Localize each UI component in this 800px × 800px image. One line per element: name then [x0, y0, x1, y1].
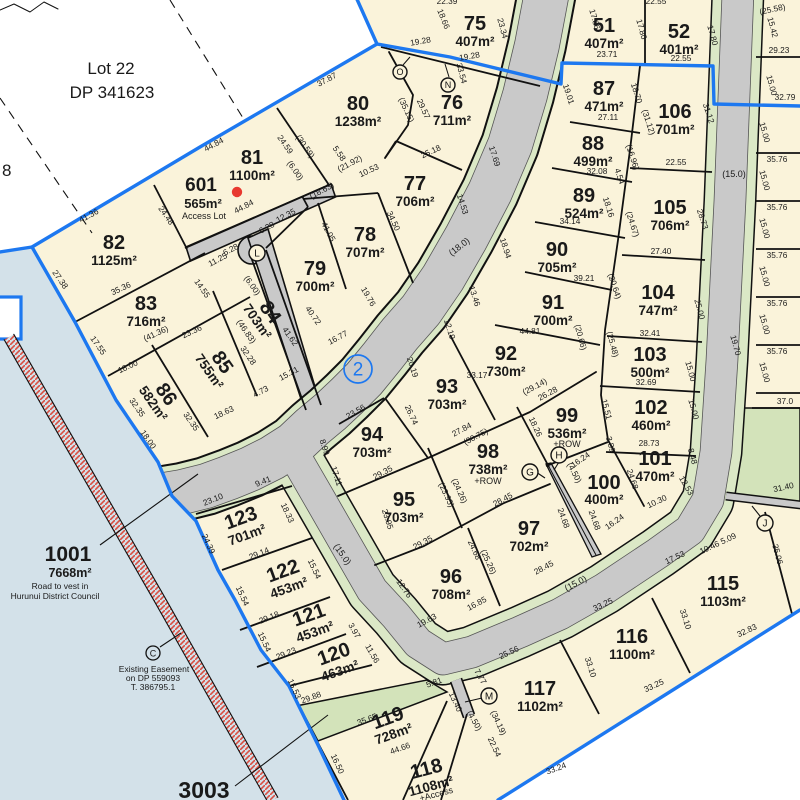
svg-text:400m²: 400m²	[584, 492, 624, 507]
svg-text:L: L	[254, 249, 260, 260]
svg-text:77: 77	[404, 173, 426, 195]
svg-text:Road to vest in: Road to vest in	[32, 581, 89, 591]
svg-text:91: 91	[542, 292, 564, 314]
svg-text:7668m²: 7668m²	[48, 566, 91, 580]
svg-text:115: 115	[707, 573, 739, 595]
svg-text:35.76: 35.76	[767, 346, 788, 356]
svg-text:M: M	[485, 692, 493, 703]
svg-text:711m²: 711m²	[433, 113, 472, 128]
svg-text:706m²: 706m²	[395, 194, 435, 209]
svg-text:90: 90	[546, 239, 568, 261]
svg-text:98: 98	[477, 441, 499, 463]
svg-text:22.55: 22.55	[646, 0, 667, 6]
svg-text:+ROW: +ROW	[474, 476, 502, 486]
svg-text:T. 386795.1: T. 386795.1	[131, 682, 176, 692]
svg-text:702m²: 702m²	[509, 539, 549, 554]
svg-text:33.17: 33.17	[467, 370, 488, 380]
svg-text:82: 82	[103, 232, 125, 254]
svg-text:89: 89	[573, 185, 595, 207]
svg-text:747m²: 747m²	[638, 303, 678, 318]
svg-text:22.55: 22.55	[671, 53, 692, 63]
svg-text:28.73: 28.73	[639, 438, 660, 448]
svg-text:8: 8	[2, 161, 11, 180]
svg-text:83: 83	[135, 293, 157, 315]
svg-text:95: 95	[393, 489, 415, 511]
svg-text:96: 96	[440, 566, 462, 588]
svg-text:565m²: 565m²	[184, 196, 222, 211]
svg-text:1103m²: 1103m²	[700, 594, 746, 609]
svg-text:80: 80	[347, 93, 369, 115]
svg-text:101: 101	[638, 448, 671, 470]
svg-text:407m²: 407m²	[455, 34, 495, 49]
svg-text:1102m²: 1102m²	[517, 699, 563, 714]
svg-text:29.23: 29.23	[769, 45, 790, 55]
svg-text:700m²: 700m²	[295, 279, 335, 294]
svg-text:O: O	[396, 67, 403, 77]
svg-text:703m²: 703m²	[427, 397, 467, 412]
svg-text:706m²: 706m²	[650, 218, 690, 233]
svg-text:460m²: 460m²	[631, 418, 671, 433]
svg-text:G: G	[526, 468, 534, 479]
svg-text:27.40: 27.40	[651, 246, 672, 256]
svg-text:730m²: 730m²	[486, 364, 526, 379]
svg-text:707m²: 707m²	[345, 245, 385, 260]
svg-text:99: 99	[556, 405, 578, 427]
svg-text:3003: 3003	[178, 777, 229, 800]
svg-text:601: 601	[185, 175, 217, 196]
svg-text:470m²: 470m²	[635, 469, 675, 484]
svg-text:DP 341623: DP 341623	[70, 83, 155, 102]
svg-text:37.0: 37.0	[777, 396, 794, 406]
svg-text:116: 116	[616, 626, 648, 648]
svg-text:1100m²: 1100m²	[609, 647, 655, 662]
svg-text:Hurunui District Council: Hurunui District Council	[11, 591, 100, 601]
svg-text:23.71: 23.71	[597, 49, 618, 59]
svg-text:105: 105	[653, 197, 686, 219]
svg-text:78: 78	[354, 224, 376, 246]
svg-text:701m²: 701m²	[655, 122, 695, 137]
svg-text:C: C	[150, 649, 157, 659]
svg-text:93: 93	[436, 376, 458, 398]
svg-text:Access Lot: Access Lot	[182, 211, 227, 221]
svg-text:117: 117	[524, 678, 556, 700]
svg-text:708m²: 708m²	[431, 587, 471, 602]
svg-text:88: 88	[582, 133, 604, 155]
svg-text:87: 87	[593, 78, 615, 100]
svg-text:34.14: 34.14	[560, 216, 581, 226]
svg-text:81: 81	[241, 147, 263, 169]
svg-text:H: H	[555, 451, 562, 462]
svg-text:(15.0): (15.0)	[722, 169, 746, 179]
svg-text:44.81: 44.81	[520, 326, 541, 336]
svg-text:1238m²: 1238m²	[335, 114, 382, 129]
svg-text:39.21: 39.21	[574, 273, 595, 283]
svg-text:102: 102	[634, 397, 667, 419]
svg-text:22.55: 22.55	[666, 157, 687, 167]
svg-text:N: N	[445, 80, 452, 90]
svg-text:35.76: 35.76	[767, 298, 788, 308]
svg-text:27.11: 27.11	[598, 112, 619, 122]
svg-text:106: 106	[658, 101, 691, 123]
svg-text:104: 104	[641, 282, 675, 304]
svg-text:35.76: 35.76	[767, 250, 788, 260]
svg-text:1001: 1001	[45, 543, 92, 566]
svg-text:+ROW: +ROW	[553, 439, 581, 449]
svg-text:97: 97	[518, 518, 540, 540]
svg-text:32.08: 32.08	[587, 166, 608, 176]
svg-text:703m²: 703m²	[352, 445, 392, 460]
svg-text:79: 79	[304, 258, 326, 280]
svg-text:75: 75	[464, 13, 486, 35]
svg-text:1125m²: 1125m²	[91, 253, 137, 268]
svg-text:103: 103	[633, 344, 666, 366]
svg-text:705m²: 705m²	[537, 260, 577, 275]
svg-text:22.39: 22.39	[437, 0, 458, 6]
svg-text:32.41: 32.41	[640, 328, 661, 338]
svg-text:1100m²: 1100m²	[229, 168, 275, 183]
svg-text:35.76: 35.76	[767, 154, 788, 164]
svg-text:32.79: 32.79	[775, 92, 796, 102]
svg-text:76: 76	[441, 92, 463, 114]
svg-text:2: 2	[353, 360, 364, 381]
svg-text:738m²: 738m²	[468, 462, 508, 477]
svg-text:52: 52	[668, 21, 690, 43]
svg-text:Lot 22: Lot 22	[87, 59, 134, 78]
svg-text:94: 94	[361, 424, 384, 446]
svg-text:100: 100	[587, 472, 620, 494]
svg-text:92: 92	[495, 343, 517, 365]
svg-text:J: J	[763, 519, 768, 530]
svg-text:32.69: 32.69	[636, 377, 657, 387]
svg-text:35.76: 35.76	[767, 202, 788, 212]
